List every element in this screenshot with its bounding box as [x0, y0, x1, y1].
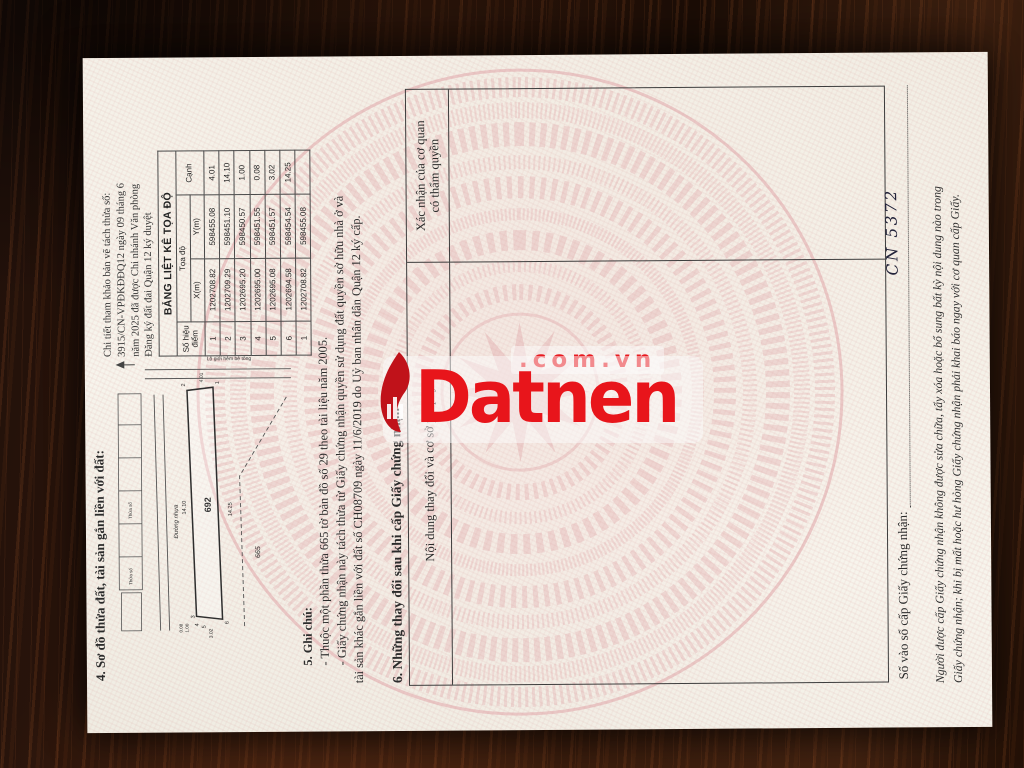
col-header-x: X(m) — [191, 258, 205, 321]
edge-cell: 0.08 — [249, 150, 264, 194]
dim-right: 4.01 — [199, 372, 205, 382]
parcel-number: 692 — [203, 497, 213, 512]
x-cell: 1202695.20 — [235, 258, 251, 321]
point-cell: 4 — [251, 321, 266, 355]
col-header-coords: Tọa độ — [176, 195, 191, 322]
boundary-dashed-line — [239, 396, 289, 626]
citation-line: Đăng ký đất đai Quận 12 ký duyệt — [142, 142, 157, 357]
register-label: Số vào sổ cấp Giấy chứng nhận: — [895, 511, 912, 679]
point-label: 1 — [215, 381, 221, 384]
changes-col-right-header: Xác nhận của cơ quan có thẩm quyền — [406, 90, 450, 262]
x-cell: 1202695.00 — [250, 258, 266, 321]
section5-notes: 5. Ghi chú: - Thuộc một phần thửa 665 tờ… — [296, 87, 368, 683]
citation-line: 3915/CN-VPĐKĐĐQ12 ngày 09 tháng 6 — [114, 142, 129, 357]
coordinate-row: 2 1202709.29 598451.10 14.10 — [219, 151, 236, 356]
dim-bottom: 14.25 — [228, 502, 234, 516]
dim-top: 14.10 — [182, 501, 188, 515]
col-header-point-l2: điểm — [190, 330, 199, 347]
coordinate-row: 5 1202695.08 598451.57 3.02 — [265, 150, 282, 355]
y-cell: 598450.57 — [234, 195, 250, 258]
point-cell: 1 — [205, 322, 220, 356]
section6-title: 6. Những thay đổi sau khi cấp Giấy chứng… — [388, 408, 406, 683]
watermark-brand-box: Datnen — [383, 356, 703, 443]
register-line: Số vào sổ cấp Giấy chứng nhận: CN 5372 — [891, 85, 912, 679]
coordinate-row: 3 1202695.20 598450.57 1.00 — [234, 151, 251, 356]
dim-c2: 0.08 — [179, 623, 184, 632]
point-cell: 3 — [235, 321, 250, 355]
road-lines — [154, 395, 170, 631]
point-label: 5 — [202, 625, 208, 628]
origin-parcel-number: 665 — [255, 546, 262, 558]
point-label: 3 — [191, 615, 197, 618]
citation-line: Chi tiết tham khảo bản vẽ tách thửa số: — [100, 142, 115, 357]
x-cell: 1202709.29 — [220, 258, 236, 321]
edge-cell: 14.25 — [280, 150, 295, 194]
point-cell: 2 — [220, 321, 235, 355]
col-header-y: Y(m) — [190, 195, 204, 258]
fine-print-line: Giấy chứng nhận; khi bị mất hoặc hư hỏng… — [945, 83, 967, 683]
y-cell: 598451.57 — [265, 195, 281, 258]
edge-cell: 1.00 — [234, 151, 249, 195]
changes-col-left-header: Nội dung thay đổi và cơ sở pháp lý — [407, 262, 453, 685]
y-cell: 598455.08 — [204, 195, 220, 258]
road-label: Đường nhựa — [174, 504, 180, 539]
watermark-brand-text: Datnen — [415, 356, 677, 439]
coordinate-row: 6 1202694.58 598454.54 14.25 — [280, 150, 297, 355]
changes-body-left-cell — [450, 259, 888, 685]
register-number-handwritten: CN 5372 — [882, 188, 902, 276]
point-label: 4 — [195, 623, 201, 626]
dim-left: 3.02 — [209, 628, 215, 638]
cadastral-drawing: Thửa số Thửa số Đường nhựa 692 14.10 14.… — [115, 354, 299, 647]
col-header-edge: Cạnh — [176, 151, 204, 195]
coordinate-row: 4 1202695.00 598451.55 0.08 — [249, 150, 266, 355]
dim-c1: 1.00 — [185, 623, 190, 632]
edge-cell: 14.10 — [219, 151, 234, 195]
x-cell: 1202694.58 — [280, 258, 296, 321]
citation-line: năm 2025 đã được Chi nhánh Văn phòng — [128, 142, 143, 357]
y-cell: 598451.55 — [250, 195, 266, 258]
point-cell: 5 — [266, 321, 281, 355]
point-label: 2 — [181, 383, 187, 386]
x-cell: 1202695.08 — [265, 258, 281, 321]
register-dotted-line: CN 5372 — [891, 85, 911, 507]
alley-label: Lộ giới hẻm bê tông — [207, 356, 252, 362]
y-cell: 598451.10 — [219, 195, 235, 258]
coordinate-row: 1 1202708.82 598455.08 4.01 — [204, 151, 221, 356]
x-cell: 1202708.82 — [205, 258, 221, 321]
photo-of-land-certificate: { "colors": { "watermark_red": "#e8191f"… — [0, 0, 1024, 768]
neighbor-parcel-label: Thửa số — [127, 568, 133, 585]
north-arrow-icon — [117, 362, 135, 368]
changes-col-right-l2: có thẩm quyền — [427, 139, 442, 213]
coordinate-table-body: 1 1202708.82 598455.08 4.01 2 1202709.29… — [204, 150, 312, 356]
point-cell: 6 — [281, 321, 296, 355]
neighbor-parcel-label: Thửa số — [127, 502, 133, 519]
fine-print: Người được cấp Giấy chứng nhận không đượ… — [928, 83, 967, 683]
section4-title: 4. Sơ đồ thửa đất, tài sản gắn liền với … — [91, 450, 109, 681]
alley-lines — [145, 369, 291, 379]
edge-cell: 4.01 — [204, 151, 219, 195]
point-label: 6 — [225, 621, 231, 624]
y-cell: 598454.54 — [280, 194, 296, 257]
edge-cell: 3.02 — [265, 150, 280, 194]
coordinate-table: BẢNG LIỆT KÊ TỌA ĐỘ Số hiệu điểm Tọa độ … — [157, 150, 312, 357]
changes-col-right-l1: Xác nhận của cơ quan — [413, 120, 428, 231]
datnen-logo-icon — [379, 352, 419, 434]
citation-note: Chi tiết tham khảo bản vẽ tách thửa số: … — [100, 142, 157, 357]
changes-body-right-cell — [449, 87, 885, 262]
col-header-point: Số hiệu điểm — [177, 322, 205, 356]
coordinate-table-title: BẢNG LIỆT KÊ TỌA ĐỘ — [158, 151, 177, 356]
